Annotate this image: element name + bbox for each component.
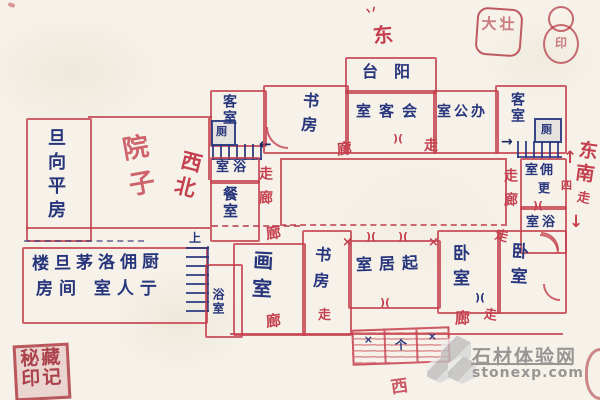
office-room-label: 室公办 [437,105,488,119]
maid-room-label: 室佣 [525,164,555,177]
square-seal-text: 大壮 [478,17,520,33]
southeast-walk-label: 走 [576,191,591,206]
bottom-left-seal: 秘藏印记 [13,343,72,400]
atelier-label: 画室 [250,250,273,307]
door-mark-bedrooms: )( [475,292,485,303]
central-hall [280,158,507,226]
living-room-label: 室居起 [356,255,426,273]
guest-room-right-label: 客室 [510,92,524,124]
watermark-url: stonexp.com [472,365,584,381]
southeast-down-arrow: ↓ [569,214,583,231]
bedroom-2-label: 卧室 [507,242,527,293]
door-mark-living-top2: )( [398,231,408,242]
door-mark-living-top1: )( [366,231,376,242]
bedroom-1 [437,230,501,314]
right-edge-seal [585,348,600,400]
stairs-up-label: 上 [189,232,201,244]
square-seal: 大壮 [474,6,523,57]
courtyard-bottom-dashes [24,240,144,242]
planter-divider-2 [415,329,418,361]
ink-speck [8,2,16,8]
office-room [433,90,499,154]
corridor-right-label: 走廊 [503,168,517,216]
door-mark-bath-right: )( [533,200,543,211]
toilet-box-right: 厕 [534,118,562,143]
stairs-top-right [517,141,562,158]
study-top-label: 书房 [298,92,317,141]
corridor-bottom-lang2: 廊 [455,311,470,326]
cross-mark-living-left: × [342,236,353,249]
door-mark-living-bottom: )( [380,297,390,308]
upper-corridor-dashes [212,225,300,227]
planter-mark-left: × [364,334,374,345]
maid-room-sublabel: 更 [538,182,550,194]
courtyard-label: 院子 [118,132,156,207]
bedroom-1-label: 卧室 [450,244,467,294]
bath-top-label: 室浴 [216,161,250,174]
meeting-room-label: 室客会 [356,104,425,119]
toilet-right-label: 厕 [541,124,552,135]
corridor-left-label: 走廊 [258,166,272,214]
balcony-label: 台阳 [362,64,426,80]
compass-top-tick: 丷 [364,4,380,20]
living-room [348,240,441,309]
west-flat-label: 旦向平房 [46,128,64,224]
planter-divider-1 [383,331,386,363]
watermark: 石材体验网 stonexp.com [425,333,575,385]
gourd-seal: 印 [541,6,579,66]
corridor-top-lang: 廊 [336,141,353,157]
bath-right-label: 室浴 [526,216,558,229]
gourd-seal-text: 印 [555,36,567,50]
corridor-bottom-zou1: 走 [318,309,331,322]
corridor-bottom-zou2: 走 [483,308,498,323]
toilet-left-label: 厕 [216,126,227,137]
service-block-line2: 房间 室人亍 [36,281,163,298]
bottom-left-seal-text: 秘藏印记 [19,348,65,390]
service-block-line1: 楼旦茅洛佣厨 [32,254,164,273]
courtyard-bottom-wall [26,227,210,229]
dining-room-label: 餐室 [222,186,237,220]
bath-bottom-label: 浴室 [212,288,224,316]
compass-east-label: 东 [372,24,394,46]
courtyard-top-wall [88,116,212,118]
corridor-atelier-lang: 廊 [265,225,282,242]
floor-plan-scan: 丷 东 西 西北 东南 ↑ 四 走 ↓ 大壮 印 秘藏印记 旦向平房 院子 客室… [0,0,600,400]
door-mark-hall-top: )( [393,133,403,144]
compass-northwest-label: 西北 [170,148,203,204]
stairs-right-arrow: → [501,135,513,149]
study-bottom-label: 书房 [310,246,330,299]
toilet-box-left: 厕 [211,120,236,146]
corridor-bottom-lang1: 廊 [265,313,282,329]
compass-west-label: 西 [390,378,409,397]
corridor-top-zou: 走 [424,139,438,153]
planter-mark-center: 个 [395,339,407,351]
gourd-seal-bottom: 印 [543,24,579,64]
